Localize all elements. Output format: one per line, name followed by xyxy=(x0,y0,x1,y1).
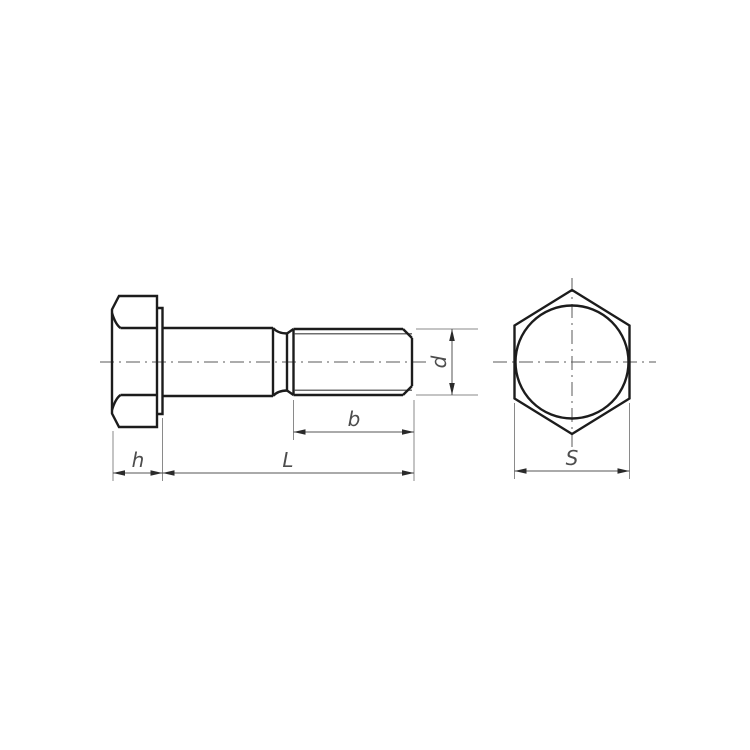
dimension-L: L xyxy=(163,400,415,481)
arrowhead-right xyxy=(402,429,414,435)
head-chamfer-arc-bottom xyxy=(112,395,121,410)
dimension-label-h: h xyxy=(132,448,145,472)
arrowhead-left xyxy=(294,429,306,435)
head-chamfer-arc-top xyxy=(112,313,121,328)
bolt-side-view xyxy=(100,296,428,427)
neck-curve-bottom xyxy=(273,391,287,397)
dimension-label-S: S xyxy=(566,446,579,470)
technical-drawing-canvas: h L b d xyxy=(0,0,750,750)
bolt-end-view xyxy=(493,278,656,447)
arrowhead-bottom xyxy=(449,383,455,395)
arrowhead-left xyxy=(515,468,527,474)
neck-curve-top xyxy=(273,328,287,334)
arrowhead-left xyxy=(163,470,175,476)
arrowhead-top xyxy=(449,329,455,341)
dimension-label-L: L xyxy=(282,448,293,472)
dimension-label-b: b xyxy=(348,407,361,431)
arrowhead-right xyxy=(618,468,630,474)
arrowhead-left xyxy=(113,470,125,476)
arrowhead-right xyxy=(402,470,414,476)
hex-bolt-drawing: h L b d xyxy=(0,0,750,750)
dimension-b: b xyxy=(294,400,415,440)
dimension-label-d: d xyxy=(427,355,451,368)
arrowhead-right xyxy=(151,470,163,476)
